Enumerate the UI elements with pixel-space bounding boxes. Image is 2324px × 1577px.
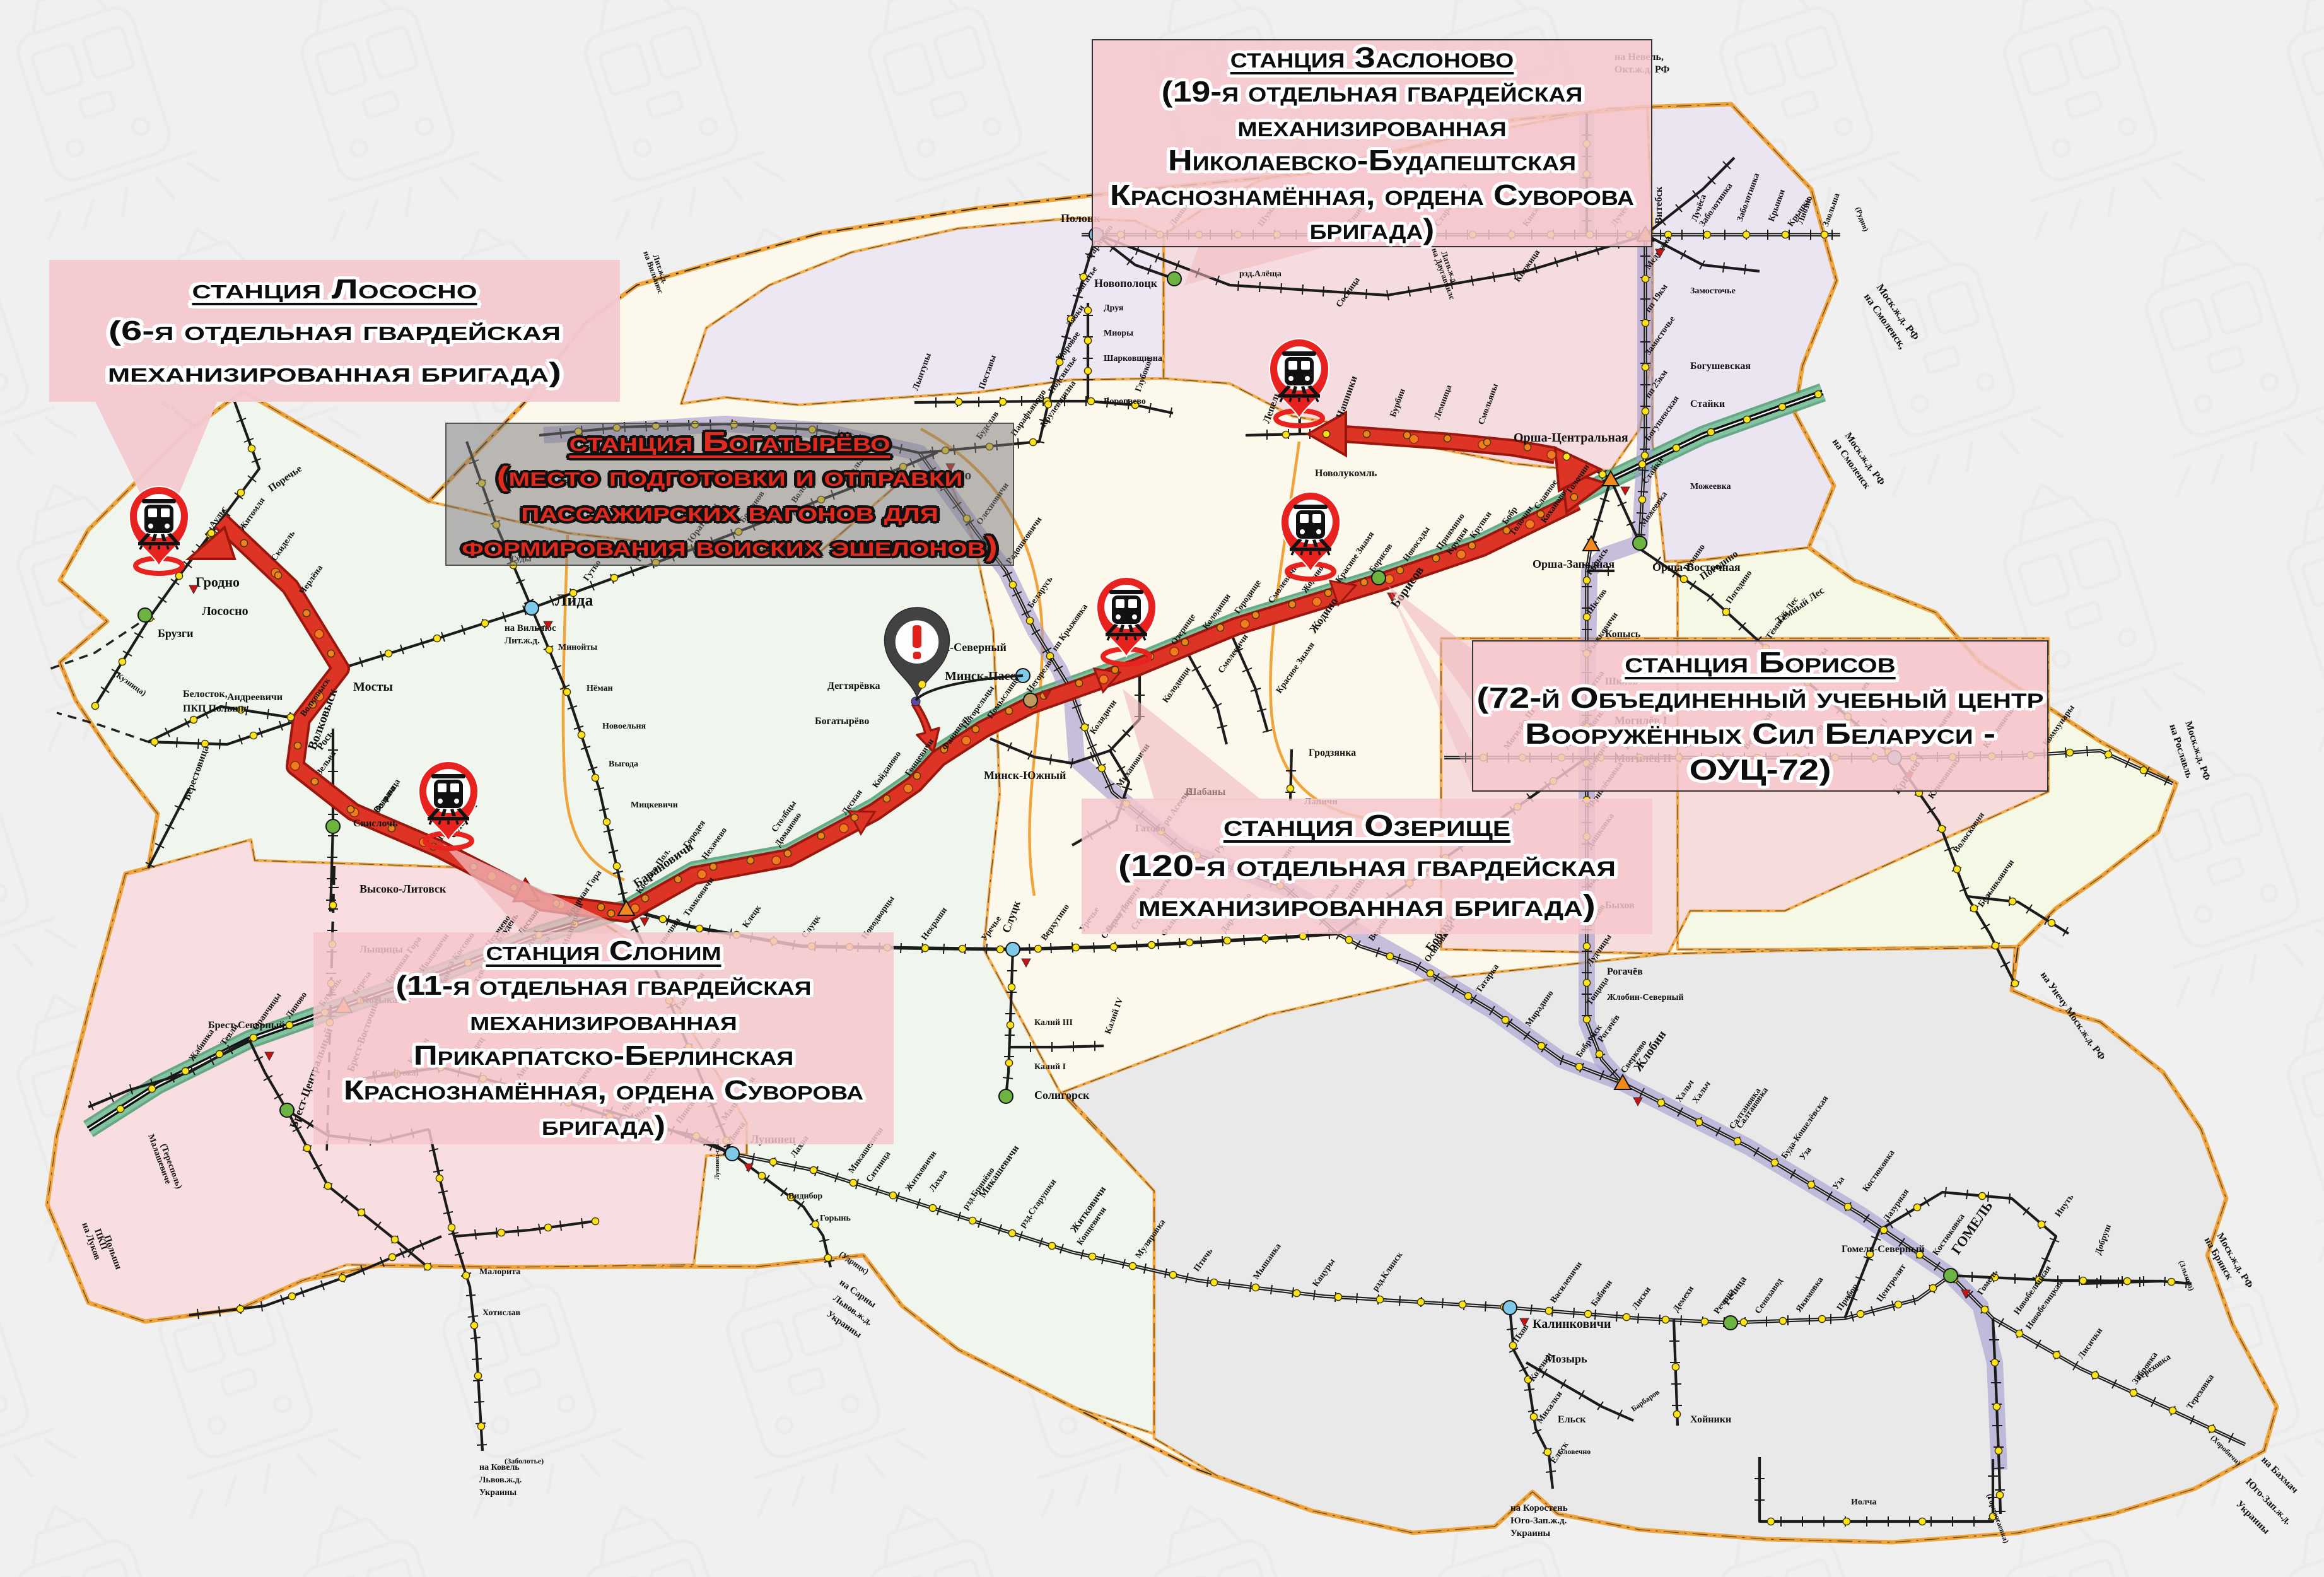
svg-text:Калий III: Калий III [1034, 1018, 1073, 1028]
svg-text:Гомель-Северный: Гомель-Северный [1842, 1244, 1925, 1255]
svg-text:Брузги: Брузги [158, 627, 193, 640]
svg-text:Мицкевичи: Мицкевичи [631, 800, 678, 810]
svg-text:ПКП Польши: ПКП Польши [183, 703, 247, 714]
svg-text:Богатырёво: Богатырёво [815, 716, 869, 727]
svg-text:Можеевка: Можеевка [1690, 482, 1731, 491]
svg-text:Свислочь: Свислочь [353, 818, 398, 829]
svg-text:Украины: Украины [1510, 1528, 1551, 1539]
svg-text:Минойты: Минойты [558, 643, 597, 652]
svg-text:Белосток,: Белосток, [183, 689, 228, 700]
svg-text:Лида: Лида [555, 591, 593, 609]
svg-text:Львов.ж.д.: Львов.ж.д. [479, 1475, 522, 1485]
svg-text:Дегтярёвка: Дегтярёвка [827, 681, 880, 691]
svg-text:Мосты: Мосты [353, 680, 393, 694]
svg-text:Ельск: Ельск [1558, 1414, 1586, 1425]
svg-text:Андреевичи: Андреевичи [227, 692, 283, 703]
svg-text:Орша-Центральная: Орша-Центральная [1514, 431, 1628, 445]
svg-text:Воропаево: Воропаево [1104, 397, 1146, 406]
svg-text:Миоры: Миоры [1104, 329, 1133, 338]
svg-text:Гродзянка: Гродзянка [1309, 747, 1356, 758]
svg-text:Юго-Зап.ж.д.: Юго-Зап.ж.д. [1510, 1516, 1567, 1526]
svg-text:Новолукомль: Новолукомль [1315, 468, 1377, 479]
svg-text:Иолча: Иолча [1851, 1498, 1876, 1507]
svg-text:Друя: Друя [1104, 303, 1124, 313]
svg-text:Выгода: Выгода [609, 759, 638, 769]
svg-text:Рогачёв: Рогачёв [1607, 966, 1643, 977]
svg-text:Калинковичи: Калинковичи [1533, 1317, 1611, 1331]
svg-text:Высоко-Литовск: Высоко-Литовск [359, 882, 447, 895]
svg-text:Малорита: Малорита [479, 1267, 520, 1277]
svg-text:Калий I: Калий I [1034, 1062, 1066, 1072]
svg-text:Видибор: Видибор [788, 1192, 822, 1201]
svg-text:Богушевская: Богушевская [1690, 361, 1751, 372]
svg-text:Нёман: Нёман [587, 684, 613, 693]
svg-text:Украины: Украины [479, 1488, 517, 1498]
svg-text:Солигорск: Солигорск [1034, 1089, 1090, 1101]
svg-text:Горынь: Горынь [820, 1214, 851, 1223]
svg-text:(Заболотье): (Заболотье) [505, 1457, 544, 1465]
svg-text:Лососно: Лососно [202, 604, 248, 618]
svg-text:Новоельня: Новоельня [602, 722, 646, 731]
svg-text:Лит.ж.д.: Лит.ж.д. [505, 636, 540, 646]
svg-text:Копысь: Копысь [1605, 629, 1641, 640]
svg-text:Хойники: Хойники [1690, 1414, 1731, 1425]
svg-text:Новополоцк: Новополоцк [1094, 277, 1158, 290]
svg-text:на Коростень: на Коростень [1510, 1503, 1568, 1513]
svg-text:Гродно: Гродно [196, 574, 240, 590]
svg-text:Замосточье: Замосточье [1690, 286, 1736, 296]
svg-text:Стайки: Стайки [1690, 399, 1725, 409]
svg-text:Хотислав: Хотислав [482, 1308, 521, 1318]
svg-text:рзд.Алёща: рзд.Алёща [1239, 269, 1282, 279]
svg-text:Жлобин-Северный: Жлобин-Северный [1607, 993, 1684, 1002]
svg-text:Минск-Южный: Минск-Южный [984, 769, 1066, 782]
